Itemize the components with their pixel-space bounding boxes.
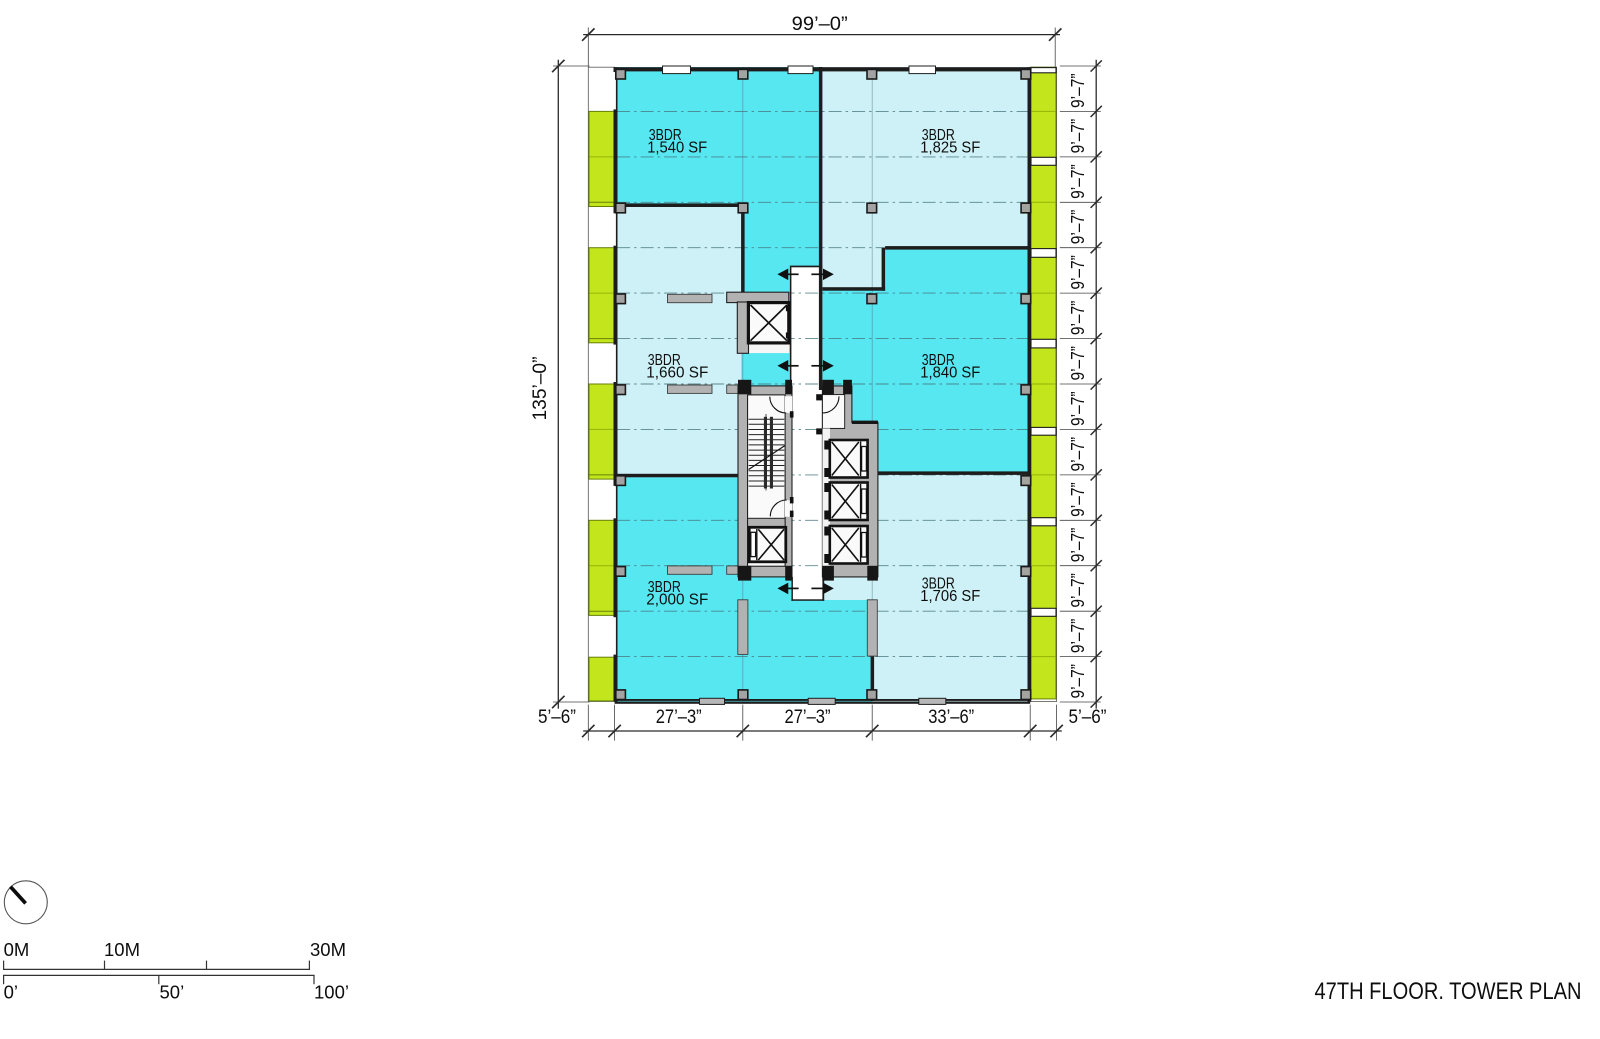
svg-text:1,825 SF: 1,825 SF <box>920 140 980 157</box>
svg-text:9’–7”: 9’–7” <box>1067 119 1088 154</box>
svg-text:27’–3”: 27’–3” <box>785 706 831 728</box>
svg-text:0’: 0’ <box>4 982 18 1003</box>
svg-text:9’–7”: 9’–7” <box>1067 528 1088 563</box>
svg-text:47TH FLOOR. TOWER PLAN: 47TH FLOOR. TOWER PLAN <box>1315 978 1582 1005</box>
svg-text:0M: 0M <box>4 939 30 960</box>
svg-text:9’–7”: 9’–7” <box>1067 437 1088 472</box>
svg-text:5’–6”: 5’–6” <box>1069 706 1107 728</box>
svg-text:33’–6”: 33’–6” <box>928 706 974 728</box>
svg-text:30M: 30M <box>310 939 346 960</box>
svg-text:9’–7”: 9’–7” <box>1067 255 1088 290</box>
svg-text:9’–7”: 9’–7” <box>1067 391 1088 426</box>
svg-text:50’: 50’ <box>160 982 185 1003</box>
svg-text:5’–6”: 5’–6” <box>538 706 576 728</box>
svg-text:10M: 10M <box>104 939 140 960</box>
svg-text:99’–0”: 99’–0” <box>792 13 848 35</box>
svg-text:27’–3”: 27’–3” <box>656 706 702 728</box>
svg-text:9’–7”: 9’–7” <box>1067 482 1088 516</box>
svg-text:1,706 SF: 1,706 SF <box>920 588 980 605</box>
svg-text:1,660 SF: 1,660 SF <box>646 365 708 382</box>
svg-text:9’–7”: 9’–7” <box>1067 73 1088 108</box>
svg-text:9’–7”: 9’–7” <box>1067 346 1088 381</box>
svg-text:9’–7”: 9’–7” <box>1067 301 1088 336</box>
svg-text:135’–0”: 135’–0” <box>529 357 551 421</box>
svg-text:100’: 100’ <box>314 982 349 1003</box>
svg-text:9’–7”: 9’–7” <box>1067 210 1088 245</box>
svg-text:9’–7”: 9’–7” <box>1067 619 1088 654</box>
svg-text:2,000 SF: 2,000 SF <box>646 592 708 609</box>
svg-text:9’–7”: 9’–7” <box>1067 573 1088 608</box>
svg-text:9’–7”: 9’–7” <box>1067 664 1088 699</box>
svg-text:1,840 SF: 1,840 SF <box>920 365 980 382</box>
svg-text:1,540 SF: 1,540 SF <box>647 140 707 157</box>
svg-text:9’–7”: 9’–7” <box>1067 164 1088 199</box>
